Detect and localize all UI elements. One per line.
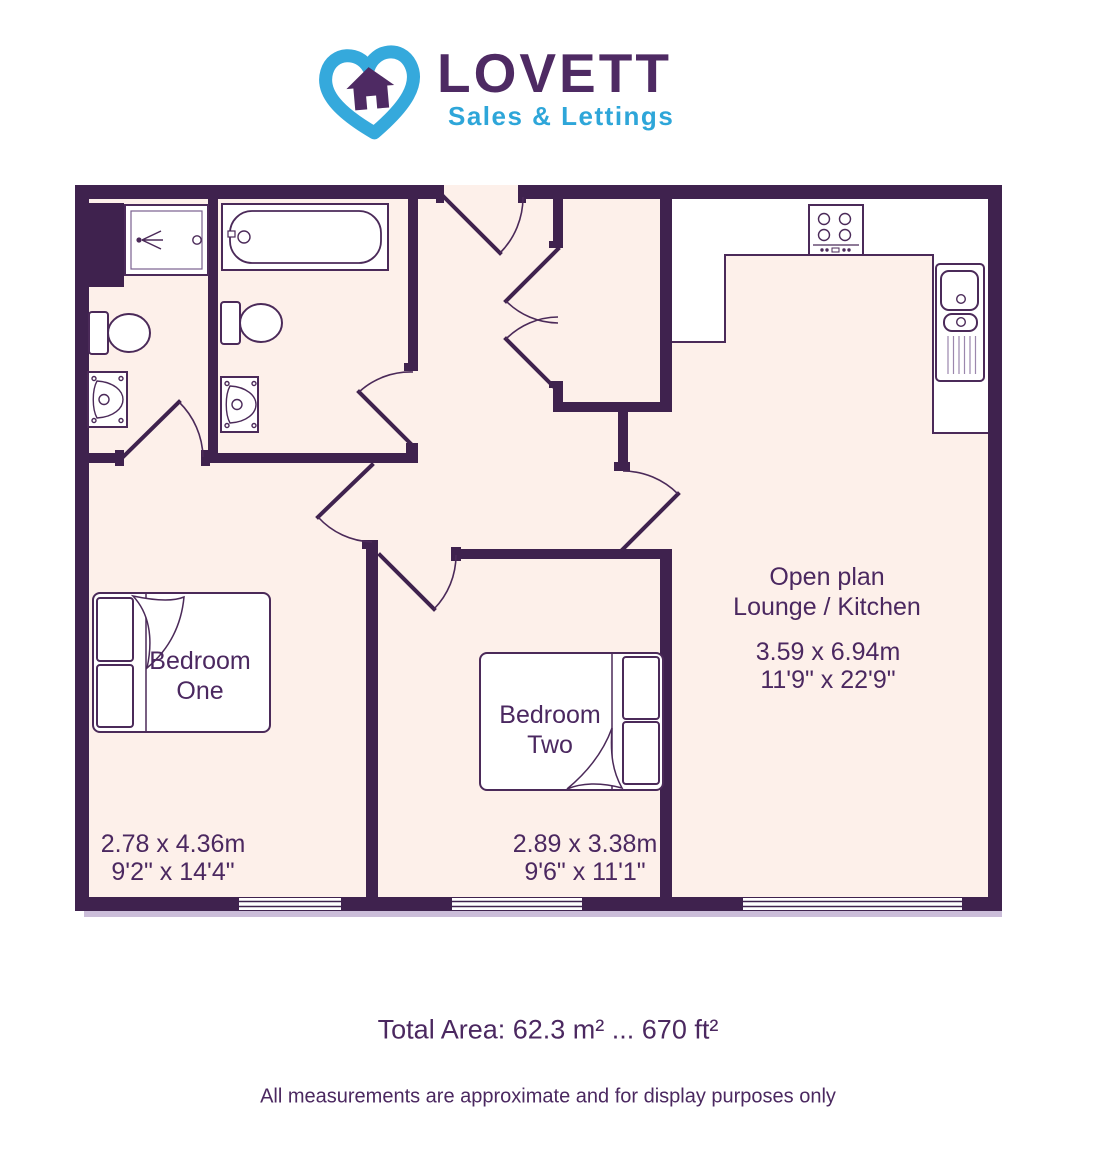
disclaimer-text: All measurements are approximate and for… bbox=[260, 1086, 836, 1109]
window-lounge bbox=[743, 898, 962, 910]
lounge-kitchen-dimensions: 3.59 x 6.94m 11'9" x 22'9" bbox=[756, 638, 901, 694]
lounge-kitchen-label: Open plan Lounge / Kitchen bbox=[733, 562, 921, 622]
plan-shadow bbox=[84, 911, 1002, 917]
duct-block bbox=[89, 203, 124, 287]
basin-icon bbox=[88, 372, 127, 427]
floorplan bbox=[0, 0, 1096, 1162]
window-bedroom-one bbox=[239, 898, 341, 910]
shower-icon bbox=[125, 205, 208, 275]
toilet-icon bbox=[221, 302, 282, 344]
basin-icon bbox=[221, 377, 258, 432]
bath-icon bbox=[222, 204, 388, 270]
hob-icon bbox=[809, 205, 863, 255]
total-area-text: Total Area: 62.3 m² ... 670 ft² bbox=[378, 1015, 719, 1046]
window-bedroom-two bbox=[452, 898, 582, 910]
bedroom-one-label: Bedroom One bbox=[149, 646, 250, 706]
bedroom-two-dimensions: 2.89 x 3.38m 9'6" x 11'1" bbox=[513, 830, 658, 886]
bedroom-two-label: Bedroom Two bbox=[499, 700, 600, 760]
toilet-icon bbox=[89, 312, 150, 354]
kitchen-sink-icon bbox=[936, 264, 984, 381]
bedroom-one-dimensions: 2.78 x 4.36m 9'2" x 14'4" bbox=[101, 830, 246, 886]
